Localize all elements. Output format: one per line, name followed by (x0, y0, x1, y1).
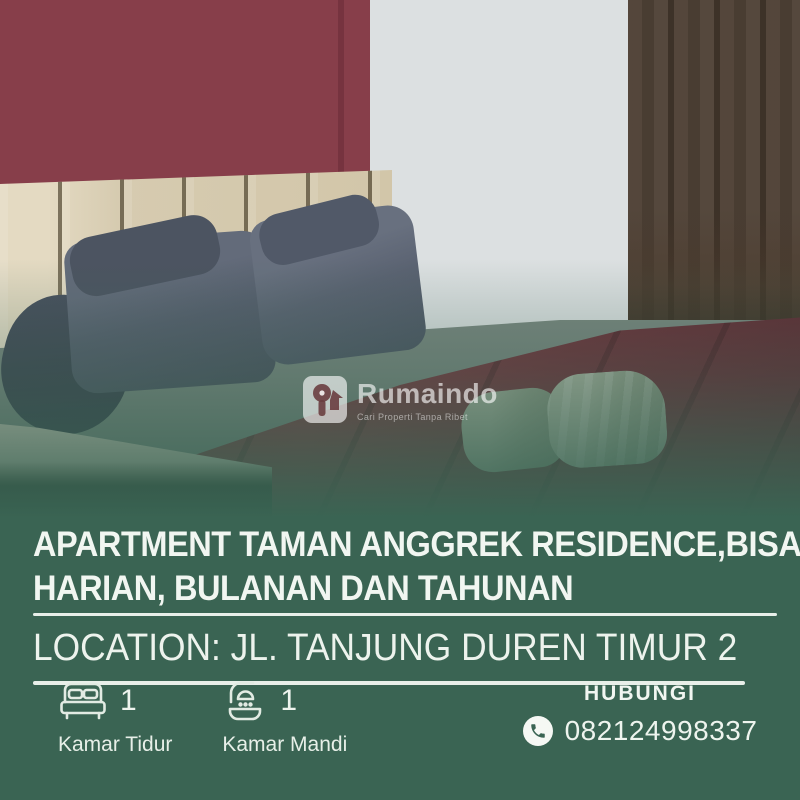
feature-list: 1 Kamar Tidur (58, 678, 347, 757)
bedroom-count: 1 (120, 684, 137, 718)
bedroom-photo: Rumaindo Cari Properti Tanpa Ribet (0, 0, 800, 518)
contact-phone-number: 082124998337 (565, 715, 758, 747)
divider-under-title (33, 613, 777, 616)
rumaindo-key-house-icon (303, 376, 347, 423)
bathroom-label: Kamar Mandi (222, 733, 347, 757)
contact-heading: HUBUNGI (510, 682, 770, 706)
listing-title-line1: APARTMENT TAMAN ANGGREK RESIDENCE,BISA (33, 528, 746, 562)
contact-row: 082124998337 (510, 715, 770, 747)
contact-block: HUBUNGI 082124998337 (510, 682, 770, 747)
feature-bathroom: 1 Kamar Mandi (222, 678, 347, 757)
info-panel: APARTMENT TAMAN ANGGREK RESIDENCE,BISA H… (0, 518, 800, 800)
listing-location: LOCATION: JL. TANJUNG DUREN TIMUR 2 (33, 627, 746, 670)
bathroom-count: 1 (280, 684, 297, 718)
watermark-text: Rumaindo Cari Properti Tanpa Ribet (357, 376, 498, 422)
watermark-tagline: Cari Properti Tanpa Ribet (357, 412, 498, 422)
phone-icon (523, 716, 553, 746)
bath-icon (222, 678, 268, 724)
watermark-brand: Rumaindo (357, 380, 498, 408)
rumaindo-watermark: Rumaindo Cari Properti Tanpa Ribet (303, 376, 498, 423)
feature-bedroom: 1 Kamar Tidur (58, 678, 172, 757)
listing-title-line2: HARIAN, BULANAN DAN TAHUNAN (33, 572, 746, 606)
property-flyer: Rumaindo Cari Properti Tanpa Ribet APART… (0, 0, 800, 800)
bed-icon (58, 679, 108, 723)
green-gradient-overlay (0, 0, 800, 518)
bedroom-label: Kamar Tidur (58, 733, 172, 757)
